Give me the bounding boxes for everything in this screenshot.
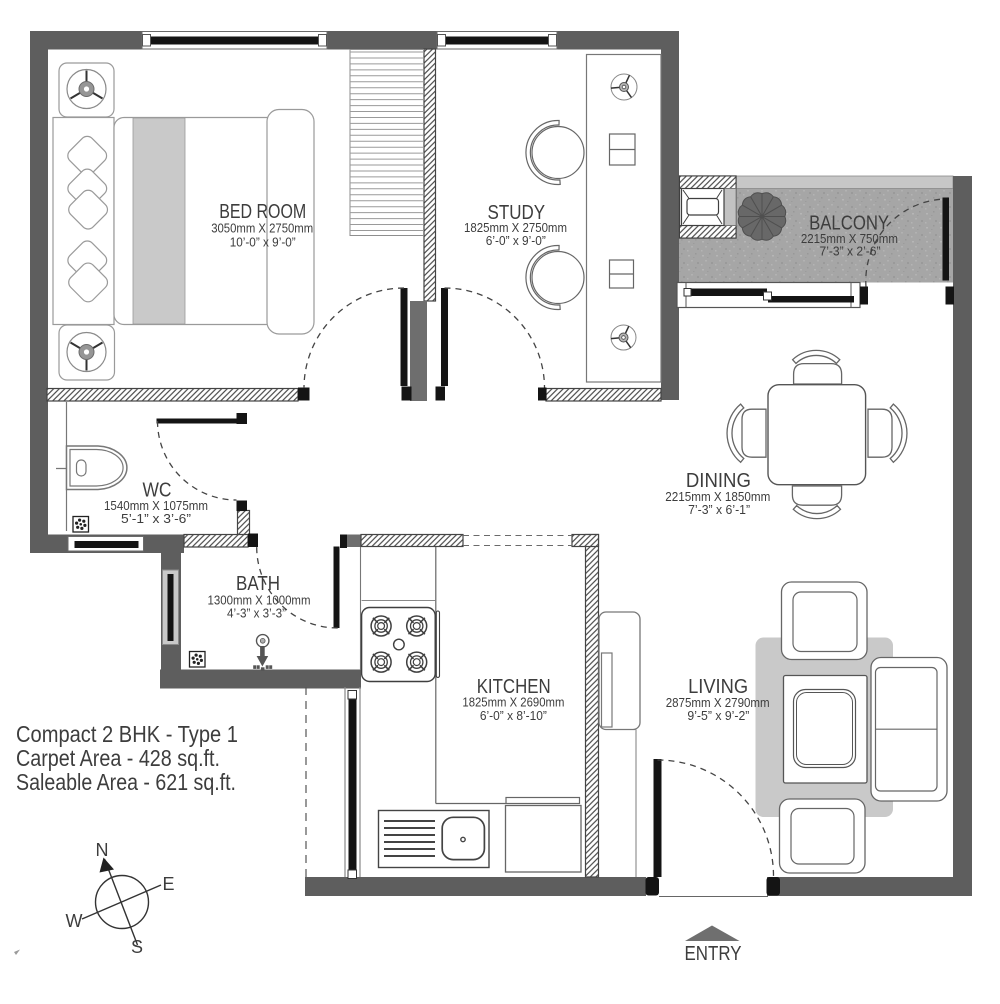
svg-text:6’-0” x 9’-0”: 6’-0” x 9’-0” [486, 233, 546, 248]
svg-text:9’-5” x 9’-2”: 9’-5” x 9’-2” [687, 708, 749, 723]
svg-text:W: W [66, 911, 83, 931]
svg-text:3050mm X 2750mm: 3050mm X 2750mm [211, 220, 313, 235]
svg-text:6’-0” x 8’-10”: 6’-0” x 8’-10” [480, 708, 547, 723]
svg-text:5’-1” x 3’-6”: 5’-1” x 3’-6” [121, 511, 191, 526]
svg-text:7’-3” x 2’-6”: 7’-3” x 2’-6” [820, 243, 881, 258]
svg-text:10’-0” x 9’-0”: 10’-0” x 9’-0” [230, 235, 296, 250]
svg-text:Compact 2 BHK - Type 1: Compact 2 BHK - Type 1 [16, 721, 238, 747]
svg-text:4’-3” x 3’-3”: 4’-3” x 3’-3” [227, 606, 286, 621]
svg-text:E: E [162, 874, 174, 894]
svg-text:Carpet Area - 428 sq.ft.: Carpet Area - 428 sq.ft. [16, 745, 220, 771]
svg-text:N: N [96, 840, 109, 860]
svg-text:S: S [131, 937, 143, 957]
svg-text:7’-3” x 6’-1”: 7’-3” x 6’-1” [688, 502, 750, 517]
svg-text:ENTRY: ENTRY [685, 943, 742, 965]
svg-text:Saleable Area - 621 sq.ft.: Saleable Area - 621 sq.ft. [16, 769, 236, 795]
